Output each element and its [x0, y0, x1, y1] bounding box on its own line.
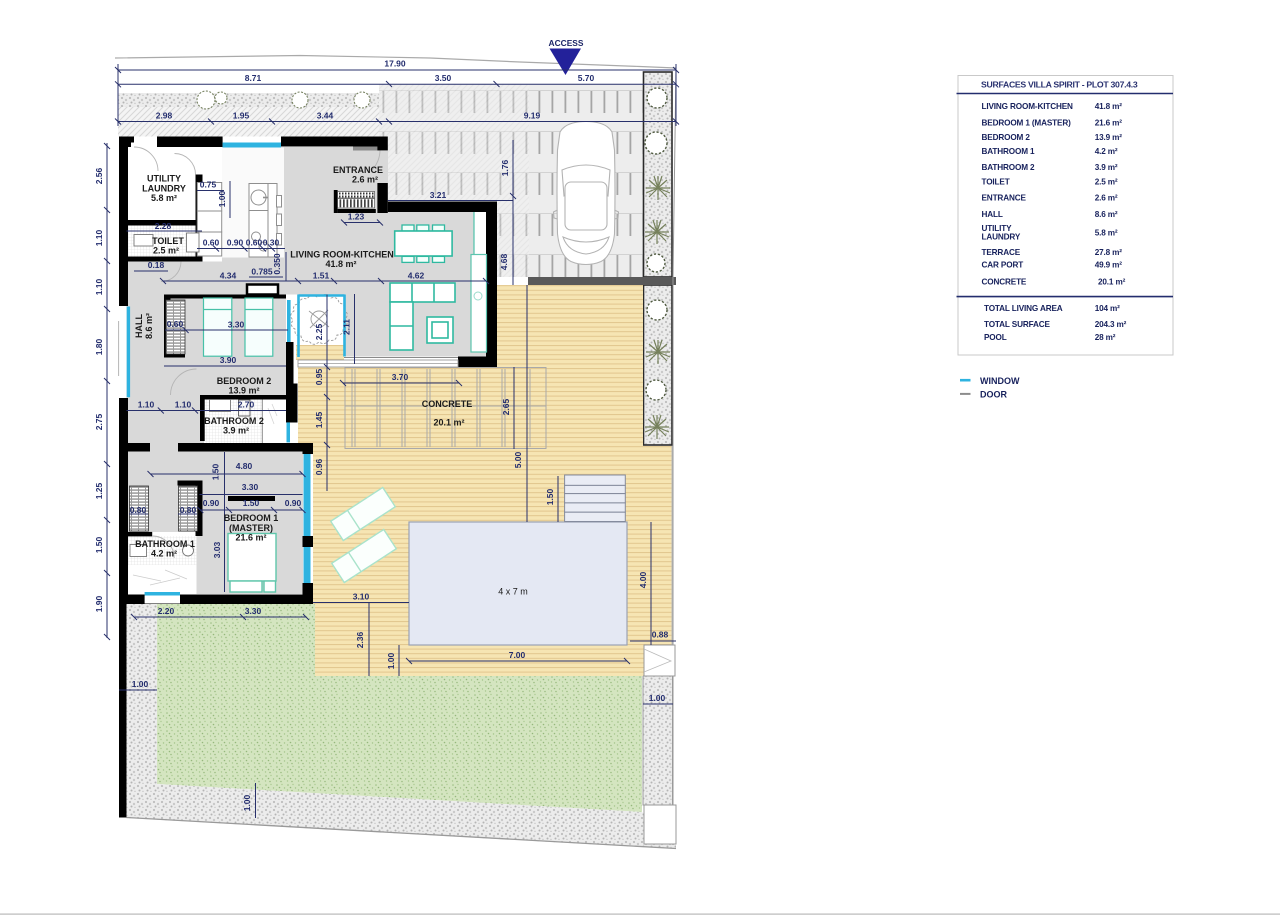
svg-text:1.95: 1.95	[233, 111, 250, 121]
svg-text:1.50: 1.50	[211, 463, 221, 480]
svg-text:4.62: 4.62	[408, 271, 425, 281]
svg-text:2.6 m²: 2.6 m²	[1095, 194, 1118, 203]
svg-text:3.03: 3.03	[212, 541, 222, 558]
svg-text:17.90: 17.90	[384, 59, 406, 69]
svg-text:0.60: 0.60	[246, 238, 263, 248]
svg-text:BEDROOM 2: BEDROOM 2	[217, 376, 272, 386]
svg-text:1.50: 1.50	[94, 536, 104, 553]
svg-text:4.80: 4.80	[236, 461, 253, 471]
svg-text:3.10: 3.10	[353, 592, 370, 602]
svg-text:3.30: 3.30	[242, 482, 259, 492]
svg-text:UTILITY: UTILITY	[147, 174, 181, 184]
svg-text:20.1 m²: 20.1 m²	[1098, 278, 1126, 287]
svg-text:HALL: HALL	[982, 210, 1003, 219]
svg-text:28 m²: 28 m²	[1095, 333, 1116, 342]
svg-text:1.80: 1.80	[94, 338, 104, 355]
svg-text:5.8 m²: 5.8 m²	[1095, 229, 1118, 238]
svg-text:4.68: 4.68	[499, 253, 509, 270]
svg-text:1.90: 1.90	[94, 595, 104, 612]
svg-text:0.18: 0.18	[148, 260, 165, 270]
svg-text:1.76: 1.76	[500, 159, 510, 176]
svg-text:4.00: 4.00	[638, 571, 648, 588]
svg-text:TOTAL LIVING AREA: TOTAL LIVING AREA	[984, 304, 1063, 313]
svg-text:3.50: 3.50	[435, 73, 452, 83]
svg-text:BEDROOM 1: BEDROOM 1	[224, 513, 279, 523]
svg-text:0.90: 0.90	[203, 498, 220, 508]
svg-text:0.785: 0.785	[251, 267, 273, 277]
svg-text:0.80: 0.80	[130, 505, 147, 515]
svg-text:ENTRANCE: ENTRANCE	[333, 165, 383, 175]
svg-text:5.70: 5.70	[578, 73, 595, 83]
svg-text:1.25: 1.25	[94, 482, 104, 499]
svg-text:21.6 m²: 21.6 m²	[1095, 119, 1123, 128]
svg-text:13.9 m²: 13.9 m²	[228, 386, 259, 396]
svg-text:BATHROOM 2: BATHROOM 2	[982, 163, 1036, 172]
svg-text:1.00: 1.00	[386, 652, 396, 669]
svg-text:0.350: 0.350	[272, 253, 282, 275]
svg-text:2.98: 2.98	[156, 111, 173, 121]
svg-text:ACCESS: ACCESS	[549, 38, 584, 48]
svg-text:HALL: HALL	[134, 314, 144, 338]
svg-text:3.30: 3.30	[245, 606, 262, 616]
svg-text:1.50: 1.50	[243, 498, 260, 508]
svg-text:1.00: 1.00	[649, 693, 666, 703]
svg-text:2.70: 2.70	[238, 400, 255, 410]
svg-text:BATHROOM 1: BATHROOM 1	[982, 147, 1036, 156]
svg-text:2.25: 2.25	[314, 323, 324, 340]
svg-text:1.23: 1.23	[348, 212, 365, 222]
svg-text:1.10: 1.10	[94, 278, 104, 295]
svg-text:SURFACES VILLA SPIRIT - PLOT 3: SURFACES VILLA SPIRIT - PLOT 307.4.3	[981, 80, 1138, 90]
svg-text:4 x 7 m: 4 x 7 m	[498, 587, 528, 597]
svg-text:9.19: 9.19	[524, 111, 541, 121]
svg-text:0.75: 0.75	[200, 180, 217, 190]
svg-text:4.34: 4.34	[220, 271, 237, 281]
svg-text:21.6 m²: 21.6 m²	[235, 533, 266, 543]
svg-text:1.10: 1.10	[175, 400, 192, 410]
svg-text:3.30: 3.30	[228, 320, 245, 330]
svg-text:1.00: 1.00	[132, 679, 149, 689]
svg-text:2.56: 2.56	[94, 167, 104, 184]
svg-text:2.5 m²: 2.5 m²	[1095, 178, 1118, 187]
svg-text:CONCRETE: CONCRETE	[982, 278, 1027, 287]
svg-text:204.3 m²: 204.3 m²	[1095, 320, 1127, 329]
svg-text:5.00: 5.00	[513, 451, 523, 468]
svg-text:TOILET: TOILET	[152, 236, 184, 246]
svg-text:DOOR: DOOR	[980, 390, 1008, 400]
svg-text:1.50: 1.50	[545, 488, 555, 505]
svg-text:41.8 m²: 41.8 m²	[325, 259, 356, 269]
svg-text:0.96: 0.96	[314, 458, 324, 475]
svg-text:3.44: 3.44	[317, 111, 334, 121]
svg-text:0.90: 0.90	[285, 498, 302, 508]
svg-text:2.65: 2.65	[501, 398, 511, 415]
svg-text:LIVING ROOM-KITCHEN: LIVING ROOM-KITCHEN	[290, 250, 394, 260]
svg-text:0.88: 0.88	[652, 630, 669, 640]
svg-text:2.20: 2.20	[158, 606, 175, 616]
svg-text:BATHROOM 2: BATHROOM 2	[204, 416, 264, 426]
svg-text:0.95: 0.95	[314, 368, 324, 385]
svg-text:CAR PORT: CAR PORT	[982, 260, 1024, 269]
svg-text:2.6 m²: 2.6 m²	[352, 175, 378, 185]
svg-text:13.9 m²: 13.9 m²	[1095, 133, 1123, 142]
svg-text:20.1 m²: 20.1 m²	[433, 418, 464, 428]
svg-text:3.9 m²: 3.9 m²	[1095, 163, 1118, 172]
svg-text:0.80: 0.80	[180, 505, 197, 515]
svg-text:3.21: 3.21	[430, 190, 447, 200]
svg-text:1.00: 1.00	[242, 794, 252, 811]
svg-text:1.10: 1.10	[138, 400, 155, 410]
svg-text:3.9 m²: 3.9 m²	[223, 426, 249, 436]
svg-text:5.8 m²: 5.8 m²	[151, 193, 177, 203]
svg-text:4.2 m²: 4.2 m²	[151, 549, 177, 559]
svg-text:BEDROOM 1 (MASTER): BEDROOM 1 (MASTER)	[982, 119, 1072, 128]
svg-text:4.2 m²: 4.2 m²	[1095, 147, 1118, 156]
svg-text:ENTRANCE: ENTRANCE	[982, 194, 1027, 203]
svg-text:3.90: 3.90	[220, 355, 237, 365]
svg-text:TOILET: TOILET	[982, 178, 1010, 187]
svg-text:1.10: 1.10	[94, 229, 104, 246]
svg-text:BEDROOM 2: BEDROOM 2	[982, 133, 1031, 142]
svg-text:TOTAL SURFACE: TOTAL SURFACE	[984, 320, 1051, 329]
svg-text:2.75: 2.75	[94, 413, 104, 430]
svg-text:1.00: 1.00	[217, 190, 227, 207]
svg-text:(MASTER): (MASTER)	[229, 523, 273, 533]
svg-text:LAUNDRY: LAUNDRY	[142, 184, 186, 194]
svg-text:CONCRETE: CONCRETE	[422, 399, 473, 409]
svg-text:2.11: 2.11	[342, 319, 352, 335]
svg-text:LIVING ROOM-KITCHEN: LIVING ROOM-KITCHEN	[982, 102, 1074, 111]
svg-text:1.51: 1.51	[313, 271, 330, 281]
svg-text:0.30: 0.30	[263, 238, 280, 248]
svg-text:0.60: 0.60	[167, 319, 184, 329]
svg-text:BATHROOM 1: BATHROOM 1	[135, 539, 195, 549]
svg-text:8.6 m²: 8.6 m²	[1095, 210, 1118, 219]
svg-text:2.36: 2.36	[355, 631, 365, 648]
svg-text:LAUNDRY: LAUNDRY	[982, 233, 1021, 242]
svg-text:27.8 m²: 27.8 m²	[1095, 248, 1123, 257]
svg-text:1.45: 1.45	[314, 411, 324, 428]
svg-text:49.9 m²: 49.9 m²	[1095, 260, 1123, 269]
svg-text:WINDOW: WINDOW	[980, 376, 1020, 386]
svg-text:0.90: 0.90	[227, 238, 244, 248]
svg-text:104 m²: 104 m²	[1095, 304, 1120, 313]
svg-text:7.00: 7.00	[509, 650, 526, 660]
svg-text:POOL: POOL	[984, 333, 1007, 342]
svg-text:2.28: 2.28	[155, 221, 172, 231]
svg-text:TERRACE: TERRACE	[982, 248, 1021, 257]
svg-text:8.6 m²: 8.6 m²	[144, 313, 154, 339]
svg-text:3.70: 3.70	[392, 372, 409, 382]
svg-text:2.5 m²: 2.5 m²	[153, 246, 179, 256]
svg-text:41.8 m²: 41.8 m²	[1095, 102, 1123, 111]
svg-text:0.60: 0.60	[203, 238, 220, 248]
svg-text:8.71: 8.71	[245, 73, 262, 83]
